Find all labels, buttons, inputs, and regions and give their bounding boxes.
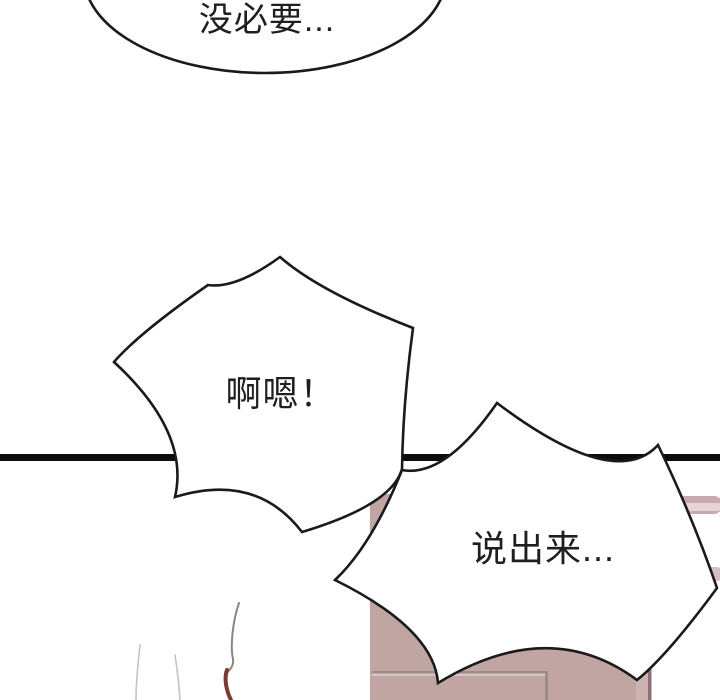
bubble-top-text: 没必要... [199, 1, 335, 39]
hair-strand-faint-1 [136, 645, 140, 700]
cabinet-seam-vertical [545, 671, 548, 700]
panel-artwork: 没必要... 啊嗯！ 说出来... [0, 0, 720, 700]
bubble-bottom-text: 说出来... [471, 528, 615, 569]
hair-strand-faint-2 [175, 655, 180, 700]
cabinet-seam-highlight [372, 674, 548, 677]
comic-panel: 没必要... 啊嗯！ 说出来... [0, 0, 720, 700]
bubble-middle-text: 啊嗯！ [225, 373, 336, 414]
hair-strands [136, 603, 239, 700]
hair-strand-brown [226, 670, 231, 700]
hair-strand-dark [227, 603, 239, 673]
